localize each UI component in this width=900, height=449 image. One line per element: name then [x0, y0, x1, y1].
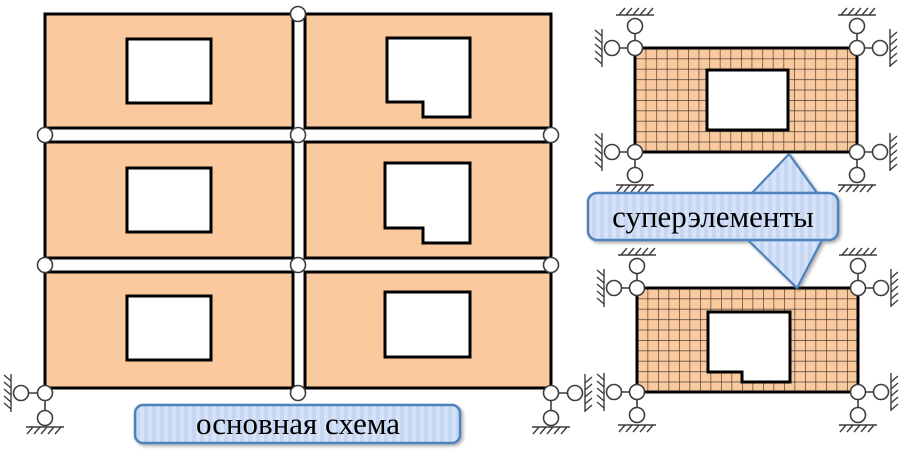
- callout-superelements: суперэлементы: [588, 154, 838, 288]
- hinge-node-icon: [291, 258, 306, 273]
- structural-diagram: суперэлементы основная схема: [0, 0, 900, 449]
- hinge-node-icon: [291, 386, 306, 401]
- hinge-node-icon: [291, 7, 306, 22]
- superelements-label: суперэлементы: [612, 199, 814, 234]
- window-opening-r3c2: [385, 292, 470, 357]
- main-scheme-label: основная схема: [196, 406, 400, 441]
- hinge-node-icon: [544, 128, 559, 143]
- diagram-canvas: суперэлементы основная схема: [0, 0, 900, 449]
- arrow-down-icon: [748, 240, 822, 288]
- window-opening-r1c1: [127, 39, 211, 103]
- hinge-node-icon: [38, 258, 53, 273]
- superelement-bottom-window: [708, 312, 790, 382]
- hinge-node-icon: [544, 258, 559, 273]
- arrow-up-icon: [752, 154, 817, 193]
- hinge-node-icon: [38, 128, 53, 143]
- window-opening-r3c1: [127, 296, 211, 360]
- callout-main-scheme: основная схема: [135, 405, 460, 443]
- window-opening-r2c1: [127, 168, 211, 232]
- superelement-top: [595, 8, 897, 192]
- superelement-bottom: [597, 248, 898, 432]
- superelement-top-window: [707, 70, 788, 130]
- hinge-node-icon: [291, 128, 306, 143]
- main-scheme: [4, 7, 592, 435]
